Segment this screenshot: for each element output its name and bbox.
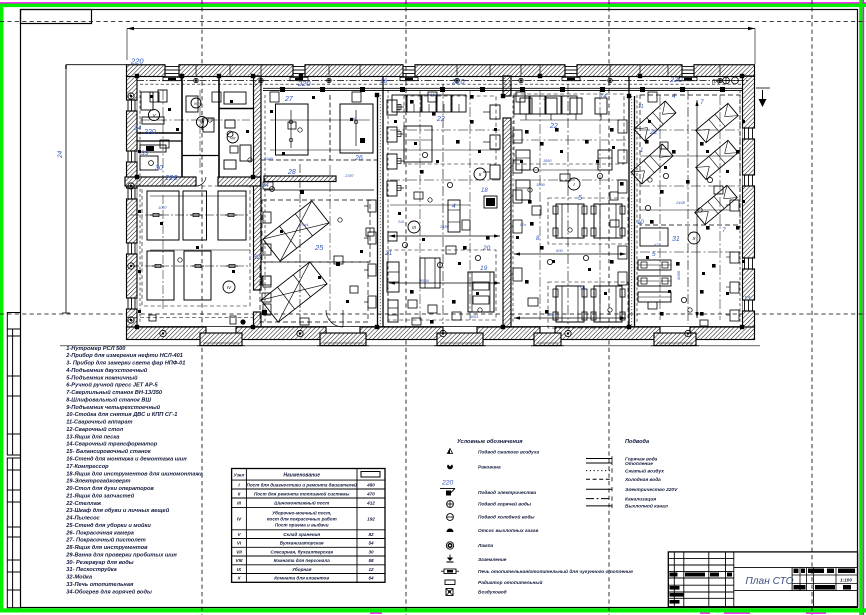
svg-text:58: 58	[368, 558, 374, 563]
svg-text:Пост для диагностики и ремонта: Пост для диагностики и ремонта двигателе…	[247, 481, 357, 487]
svg-text:1-Нутромер РСЛ 500: 1-Нутромер РСЛ 500	[66, 346, 126, 352]
svg-text:220: 220	[164, 173, 178, 182]
svg-text:Подвод холодной воды: Подвод холодной воды	[478, 514, 535, 521]
svg-text:13-Ящик для песка: 13-Ящик для песка	[66, 434, 119, 440]
svg-text:31: 31	[672, 236, 680, 243]
svg-text:27: 27	[284, 96, 294, 103]
svg-text:82: 82	[368, 532, 374, 537]
svg-text:Комната для персонала: Комната для персонала	[274, 558, 331, 563]
svg-text:Холодная вода: Холодная вода	[624, 477, 661, 483]
svg-text:19-Электрогайковерт: 19-Электрогайковерт	[66, 478, 130, 485]
svg-text:2448: 2448	[675, 200, 686, 205]
svg-text:21-Ящик для запчастей: 21-Ящик для запчастей	[65, 492, 134, 499]
svg-text:Склад хранения: Склад хранения	[283, 532, 320, 537]
svg-text:27- Покрасочный пистолет: 27- Покрасочный пистолет	[65, 537, 146, 544]
svg-text:Лампа: Лампа	[477, 543, 494, 549]
svg-text:11: 11	[638, 104, 644, 110]
svg-text:13: 13	[744, 296, 751, 302]
svg-text:пост для покрасочных работ: пост для покрасочных работ	[267, 516, 337, 522]
svg-text:192: 192	[367, 517, 375, 522]
svg-text:5-Подъемник ножничный: 5-Подъемник ножничный	[66, 374, 138, 381]
svg-text:30: 30	[368, 549, 374, 554]
svg-text:Подвода: Подвода	[625, 439, 649, 445]
svg-text:(IX): (IX)	[712, 79, 720, 85]
svg-text:220: 220	[441, 480, 454, 487]
svg-text:1007: 1007	[158, 205, 168, 210]
svg-text:32-Мойка: 32-Мойка	[66, 574, 92, 581]
svg-text:Отопление: Отопление	[625, 461, 653, 467]
svg-text:Подвод сжатого воздуха: Подвод сжатого воздуха	[478, 450, 539, 456]
svg-text:12-Сварочный стол: 12-Сварочный стол	[66, 426, 123, 433]
svg-text:План СТО: План СТО	[745, 576, 793, 587]
svg-text:30: 30	[155, 165, 163, 172]
svg-text:21: 21	[384, 250, 393, 257]
svg-text:Подвод электричества: Подвод электричества	[478, 490, 536, 496]
svg-text:2-Прибор для измерения нефти Н: 2-Прибор для измерения нефти НСЛ-401	[65, 352, 183, 359]
svg-text:Заземление: Заземление	[478, 557, 507, 563]
svg-text:3- Прибор для замерки света фа: 3- Прибор для замерки света фар НПФ-01	[66, 360, 185, 367]
svg-text:Подвод горячей воды: Подвод горячей воды	[478, 501, 532, 508]
svg-text:Сжатый воздух: Сжатый воздух	[625, 467, 664, 474]
svg-text:VIII: VIII	[236, 558, 244, 563]
svg-text:22-Стеллаж: 22-Стеллаж	[65, 501, 102, 507]
svg-text:26: 26	[354, 155, 363, 162]
svg-text:23-Шкаф для обуви и личных вещ: 23-Шкаф для обуви и личных вещей	[65, 507, 169, 514]
svg-text:14-Сварочный трансформатор: 14-Сварочный трансформатор	[66, 441, 157, 448]
svg-text:2480: 2480	[439, 224, 450, 229]
svg-text:2x5: 2x5	[397, 220, 405, 224]
svg-text:26- Покрасочная камера: 26- Покрасочная камера	[65, 530, 134, 536]
svg-text:220: 220	[130, 56, 144, 65]
svg-text:29-Ванна для проверки пробитых: 29-Ванна для проверки пробитых шин	[65, 551, 177, 558]
svg-text:VII: VII	[194, 102, 198, 106]
svg-text:16: 16	[380, 78, 388, 85]
svg-text:VI: VI	[200, 120, 205, 125]
svg-text:18-Ящик для инструментов для ш: 18-Ящик для инструментов для шиномонтажа	[66, 471, 203, 477]
svg-text:4: 4	[672, 93, 676, 100]
svg-text:31- Пескоструйка: 31- Пескоструйка	[66, 566, 117, 573]
svg-text:a23: a23	[654, 243, 661, 247]
svg-text:28: 28	[287, 169, 296, 176]
svg-text:Канализация: Канализация	[625, 496, 656, 502]
svg-text:2397: 2397	[344, 173, 355, 178]
svg-text:9: 9	[580, 285, 584, 292]
svg-text:VI: VI	[237, 541, 242, 546]
svg-text:1949: 1949	[264, 156, 274, 161]
svg-text:220: 220	[143, 129, 156, 136]
svg-text:19: 19	[480, 265, 488, 272]
svg-text:Наименование: Наименование	[283, 473, 320, 479]
svg-text:Печь отопительная/отопительный: Печь отопительная/отопительный для чугун…	[478, 568, 633, 575]
svg-text:Пост для ремонта топливной сис: Пост для ремонта топливной системы	[254, 490, 350, 496]
svg-text:24-Пылесос: 24-Пылесос	[65, 516, 100, 522]
svg-text:220: 220	[669, 75, 683, 84]
svg-text:VII: VII	[236, 549, 242, 554]
svg-text:25-Стенд для уборки и мойки: 25-Стенд для уборки и мойки	[65, 522, 151, 529]
svg-text:54: 54	[368, 541, 374, 546]
svg-text:412: 412	[366, 501, 375, 506]
svg-text:8-Шлифовальный станок ВШ: 8-Шлифовальный станок ВШ	[66, 396, 151, 403]
svg-text:22: 22	[436, 116, 445, 123]
svg-text:10-Стойка для снятия ДВС и КПП: 10-Стойка для снятия ДВС и КПП СГ-1	[66, 411, 177, 418]
svg-text:32: 32	[253, 254, 261, 261]
svg-text:34: 34	[134, 125, 142, 132]
svg-text:480: 480	[366, 482, 375, 487]
svg-text:Раковина: Раковина	[478, 465, 501, 471]
svg-text:15- Балансировочный станок: 15- Балансировочный станок	[66, 448, 152, 455]
svg-text:6081: 6081	[470, 315, 478, 319]
svg-text:7: 7	[700, 99, 704, 106]
svg-text:600: 600	[556, 248, 563, 253]
svg-text:4-Подъемник двухстоечный: 4-Подъемник двухстоечный	[65, 367, 147, 374]
svg-text:7-Сверлильный станок ВН-13/350: 7-Сверлильный станок ВН-13/350	[66, 389, 163, 396]
svg-text:18: 18	[481, 188, 488, 194]
svg-text:Пост приема и выдачи: Пост приема и выдачи	[275, 523, 329, 528]
svg-text:Отсос выхлопных газов: Отсос выхлопных газов	[478, 528, 538, 534]
svg-text:6081: 6081	[548, 312, 557, 317]
svg-text:8584: 8584	[420, 278, 430, 283]
svg-text:Комната для клиентов: Комната для клиентов	[274, 576, 329, 581]
svg-text:220: 220	[297, 79, 311, 88]
svg-text:Условные обозначения: Условные обозначения	[457, 438, 523, 445]
svg-text:33-Печь отопительная: 33-Печь отопительная	[66, 582, 134, 588]
svg-text:Узел: Узел	[234, 473, 245, 478]
svg-text:12: 12	[368, 567, 374, 572]
svg-text:220: 220	[451, 77, 465, 86]
svg-text:24: 24	[57, 150, 64, 159]
svg-text:5: 5	[578, 195, 582, 202]
svg-text:64: 64	[368, 576, 374, 581]
svg-text:20: 20	[482, 245, 491, 252]
svg-text:1890: 1890	[536, 182, 546, 187]
svg-text:20-Стол для дуги операторов: 20-Стол для дуги операторов	[65, 486, 154, 492]
svg-text:33: 33	[141, 150, 149, 157]
svg-text:Выхлопной канал: Выхлопной канал	[625, 503, 668, 510]
svg-text:6-Ручной ручной пресс JET АР-5: 6-Ручной ручной пресс JET АР-5	[66, 382, 158, 389]
svg-text:22: 22	[549, 123, 558, 130]
svg-text:470: 470	[366, 491, 375, 496]
svg-text:75x4: 75x4	[300, 223, 308, 227]
svg-text:16-Стенд для монтажа и демонта: 16-Стенд для монтажа и демонтажа шин	[66, 457, 187, 463]
svg-text:1:100: 1:100	[840, 578, 852, 583]
svg-text:Шиномонтажный пост: Шиномонтажный пост	[274, 500, 329, 506]
svg-text:1890: 1890	[543, 159, 552, 163]
svg-text:Воздуховод: Воздуховод	[478, 590, 507, 596]
svg-text:Электричество 220V: Электричество 220V	[625, 487, 678, 493]
svg-text:17-Компрессор: 17-Компрессор	[66, 464, 109, 470]
svg-text:11-Сварочный аппарат: 11-Сварочный аппарат	[66, 419, 132, 426]
svg-text:1: 1	[640, 148, 643, 154]
svg-text:Уборочно-моечный пост,: Уборочно-моечный пост,	[272, 510, 331, 516]
svg-text:34-Обогрев для горячей воды: 34-Обогрев для горячей воды	[66, 588, 152, 595]
svg-text:7: 7	[722, 227, 726, 234]
svg-text:28-Ящик для инструментов: 28-Ящик для инструментов	[65, 545, 148, 551]
svg-text:Радиатор отопительный: Радиатор отопительный	[478, 579, 543, 586]
svg-text:Слесарная, бухгалтерская: Слесарная, бухгалтерская	[270, 548, 333, 554]
svg-text:648: 648	[430, 93, 437, 97]
svg-text:30- Резервуар для воды: 30- Резервуар для воды	[66, 560, 133, 566]
svg-text:Вулканизаторская: Вулканизаторская	[280, 541, 324, 546]
svg-text:6089: 6089	[676, 270, 681, 280]
svg-text:25: 25	[314, 243, 324, 252]
svg-text:Уборная: Уборная	[292, 566, 312, 572]
svg-text:9-Подъемник четырехстоечный: 9-Подъемник четырехстоечный	[66, 404, 160, 411]
svg-text:14: 14	[600, 94, 607, 100]
svg-text:4: 4	[452, 203, 456, 210]
